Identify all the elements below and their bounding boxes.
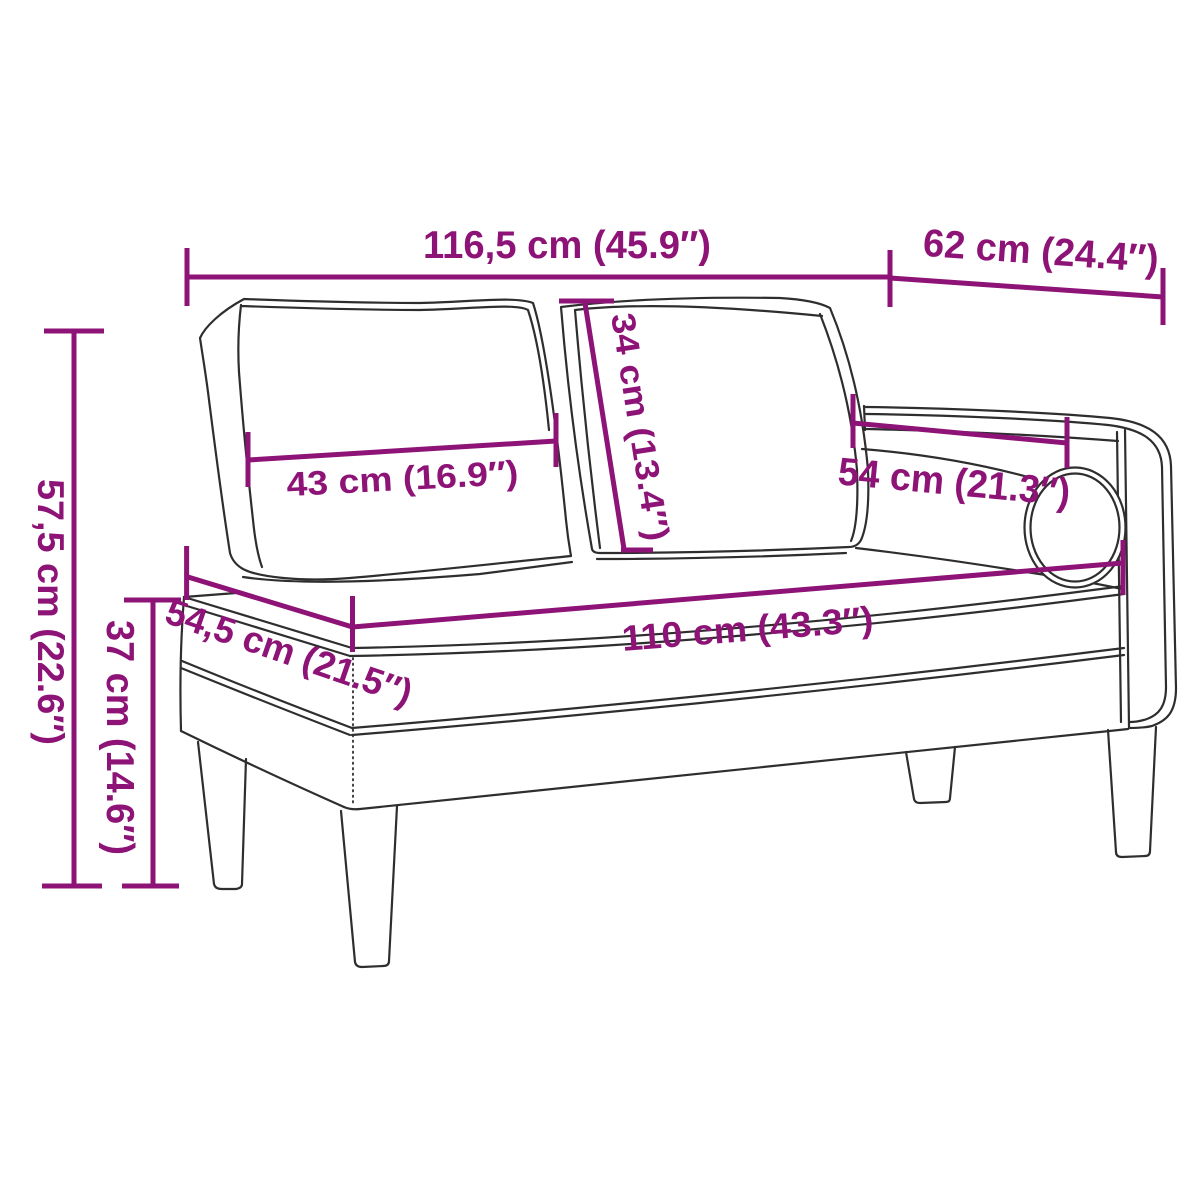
svg-text:116,5 cm (45.9″): 116,5 cm (45.9″): [423, 224, 711, 267]
svg-text:37 cm (14.6″): 37 cm (14.6″): [98, 620, 141, 855]
svg-text:57,5 cm (22.6″): 57,5 cm (22.6″): [30, 479, 72, 745]
